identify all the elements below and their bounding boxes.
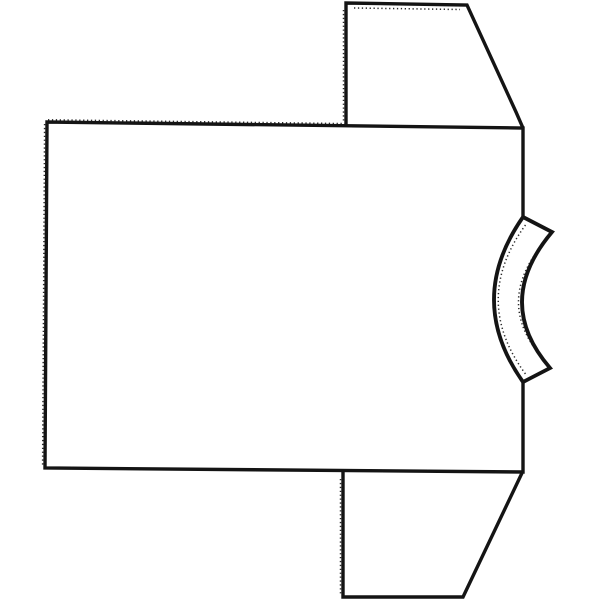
page bbox=[0, 0, 600, 600]
tshirt-line-drawing bbox=[0, 0, 600, 600]
